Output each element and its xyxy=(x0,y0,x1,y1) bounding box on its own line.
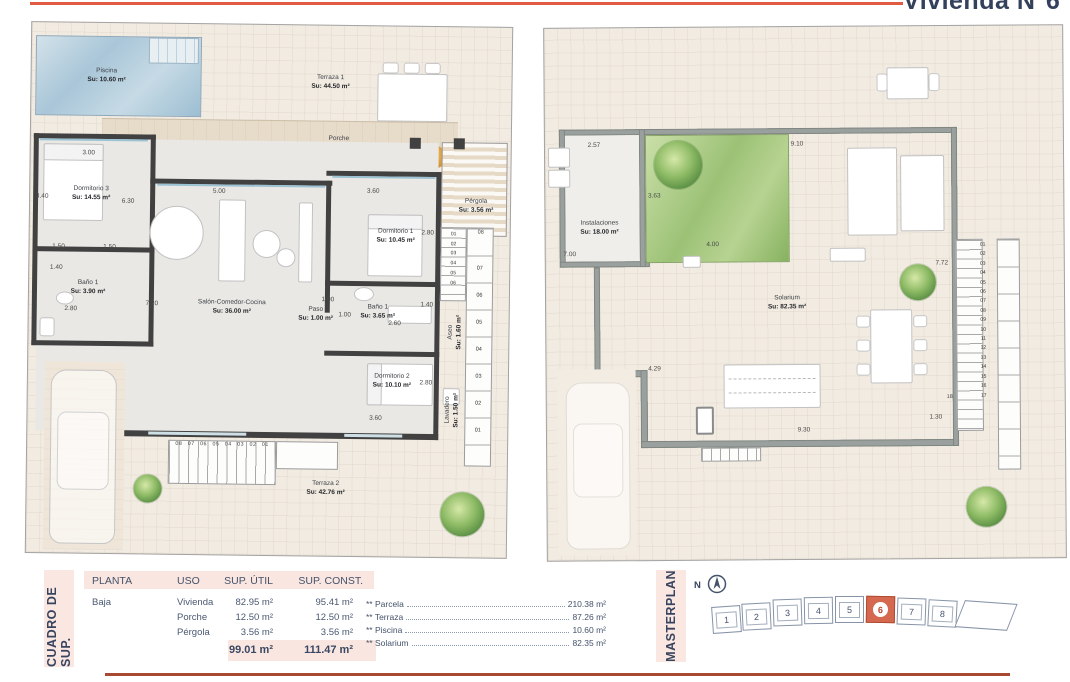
ground-floor-plan: Piscina Su: 10.60 m² Terraza 1 Su: 44.50… xyxy=(25,21,513,559)
extras-label: ** Piscina xyxy=(366,625,402,635)
dotted-leader xyxy=(405,631,569,633)
chair xyxy=(913,339,927,351)
extras-row: ** Parcela 210.38 m² xyxy=(366,596,606,609)
room-label-terraza2: Terraza 2 Su: 42.76 m² xyxy=(306,480,345,498)
planter-line xyxy=(729,392,816,394)
extras-value: 87.26 m² xyxy=(572,612,606,622)
wall-opening xyxy=(683,256,701,268)
planter xyxy=(723,364,820,409)
tree xyxy=(966,487,1006,527)
room-label-piscina: Piscina Su: 10.60 m² xyxy=(87,67,126,85)
tree xyxy=(900,264,936,300)
bottom-accent-line xyxy=(105,673,1010,676)
col-header-uso: USO xyxy=(177,575,200,587)
cell-util: 3.56 m² xyxy=(203,627,273,638)
cell-planta: Baja xyxy=(92,597,111,608)
parapet-wall xyxy=(641,370,649,448)
room-label-bano1: Baño 1 Su: 3.90 m² xyxy=(71,279,106,297)
extras-value: 10.60 m² xyxy=(572,625,606,635)
room-label-aseo: Aseo Su: 1.60 m² xyxy=(447,315,465,350)
sheet-title-clip: Vivienda N°6 xyxy=(903,0,1070,16)
chair xyxy=(856,316,870,328)
extras-row: ** Solarium 82.35 m² xyxy=(366,635,606,648)
room-area: Su: 36.00 m² xyxy=(198,307,266,317)
masterplan-unit-3: 3 xyxy=(773,599,803,627)
sofa xyxy=(218,199,246,281)
dimension-label: 7.00 xyxy=(563,251,576,258)
dimension-label: 4.29 xyxy=(648,366,661,373)
cell-util: 12.50 m² xyxy=(203,612,273,623)
col-header-sup-const: SUP. CONST. xyxy=(283,575,363,587)
table xyxy=(886,67,928,99)
unit-number: 6 xyxy=(878,604,883,614)
tree xyxy=(133,474,161,502)
cell-const: 12.50 m² xyxy=(283,612,353,623)
col-header-planta: PLANTA xyxy=(92,575,132,587)
roof-solarium-plan: Instalaciones Su: 18.00 m² Solarium Su: … xyxy=(543,24,1067,562)
chair xyxy=(856,340,870,352)
room-area: Su: 10.10 m² xyxy=(373,381,411,390)
stair-numbers-outer: 07 06 05 04 03 02 01 xyxy=(466,255,491,444)
room-area: Su: 1.00 m² xyxy=(298,314,333,323)
dotted-leader xyxy=(412,644,570,646)
dimension-label: 3.40 xyxy=(36,193,49,200)
sheet-title: Vivienda N°6 xyxy=(903,0,1070,16)
stair-numbers-inner: 01 02 03 04 05 06 xyxy=(442,230,465,288)
room-name: Terraza 1 xyxy=(311,74,349,83)
dimension-label: 18 xyxy=(947,394,953,400)
dimension-label: 6.30 xyxy=(122,198,135,205)
dimension-label: 9.30 xyxy=(798,426,811,433)
planter xyxy=(830,248,866,262)
bathroom-sink xyxy=(354,287,374,301)
masterplan-tail-plot xyxy=(954,600,1017,631)
room-area: Su: 44.50 m² xyxy=(311,83,349,92)
masterplan-unit-1: 1 xyxy=(711,605,742,634)
extras-value: 210.38 m² xyxy=(568,599,606,609)
dimension-label: 2.80 xyxy=(421,229,434,236)
dimension-label: 1.40 xyxy=(420,301,433,308)
extras-list: ** Parcela 210.38 m² ** Terraza 87.26 m²… xyxy=(366,596,606,648)
car xyxy=(49,369,117,544)
extras-label: ** Terraza xyxy=(366,612,403,622)
room-name: Salón-Comedor-Cocina xyxy=(198,298,266,308)
dimension-label: 2.80 xyxy=(64,305,77,312)
car xyxy=(566,382,631,549)
planter-line xyxy=(729,378,816,380)
chair xyxy=(425,63,441,74)
exterior-steps xyxy=(701,447,761,461)
floorplan-sheet: Vivienda N°6 Piscina Su: 10.60 m² Terraz… xyxy=(0,0,1070,682)
room-label-pergola: Pérgola Su: 3.56 m² xyxy=(459,198,494,216)
room-area: Su: 10.60 m² xyxy=(87,76,125,85)
dimension-label: 1.50 xyxy=(103,243,116,250)
chimney-vent xyxy=(696,407,714,435)
room-name: Lavadero xyxy=(444,393,453,428)
room-label-dormitorio3: Dormitorio 3 Su: 14.55 m² xyxy=(72,185,111,203)
unit-number: 8 xyxy=(940,608,946,618)
room-label-instalaciones: Instalaciones Su: 18.00 m² xyxy=(580,220,618,238)
cell-const: 95.41 m² xyxy=(283,597,353,608)
dimension-label: 7.20 xyxy=(145,300,158,307)
tree xyxy=(654,141,702,189)
stair-numbers-row: 08 07 06 05 04 03 02 01 xyxy=(175,441,269,448)
chair xyxy=(404,63,420,74)
room-label-salon: Salón-Comedor-Cocina Su: 36.00 m² xyxy=(198,298,266,316)
dimension-label: 7.72 xyxy=(935,260,948,267)
stair-flight xyxy=(997,239,1022,470)
room-label-lavadero: Lavadero Su: 1.50 m² xyxy=(444,393,462,428)
masterplan-unit-4: 4 xyxy=(804,597,833,625)
instalaciones-room xyxy=(565,135,640,262)
room-area: Su: 3.90 m² xyxy=(71,288,106,297)
room-area: Su: 10.45 m² xyxy=(376,236,414,245)
chair xyxy=(876,73,887,91)
unit-number: 3 xyxy=(785,607,790,617)
cuadro-section-label: CUADRO DE SUP. xyxy=(45,570,73,667)
room-name: Aseo xyxy=(447,315,456,350)
pouf xyxy=(276,248,295,267)
dimension-label: 2.80 xyxy=(420,379,433,386)
chair xyxy=(913,315,927,327)
room-name: Dormitorio 2 xyxy=(373,373,411,382)
stair-numbers: 01 02 03 04 05 06 07 08 09 10 11 12 13 1… xyxy=(975,241,992,401)
dimension-label: 3.00 xyxy=(82,149,95,156)
room-label-terraza1: Terraza 1 Su: 44.50 m² xyxy=(311,74,350,92)
room-name: Dormitorio 1 xyxy=(377,228,415,237)
room-label-dormitorio1: Dormitorio 1 Su: 10.45 m² xyxy=(376,228,415,246)
parapet-wall xyxy=(560,261,650,268)
unit-highlight-circle: 6 xyxy=(873,602,888,617)
dimension-label: 2.57 xyxy=(588,142,601,149)
masterplan-unit-6-highlighted: 6 xyxy=(866,596,895,624)
room-name: Terraza 2 xyxy=(306,480,344,489)
dimension-label: 2.60 xyxy=(388,320,401,327)
col-header-sup-util: SUP. ÚTIL xyxy=(203,575,273,587)
toilet xyxy=(39,317,54,336)
masterplan-unit-7: 7 xyxy=(897,598,927,626)
lounge-area xyxy=(847,147,898,235)
chair xyxy=(928,73,939,91)
room-label-bano2: Baño 1 Su: 3.65 m² xyxy=(360,303,395,321)
cell-util: 82.95 m² xyxy=(203,597,273,608)
dining-table xyxy=(870,309,913,383)
parapet-wall xyxy=(594,267,601,377)
dimension-label: 1.00 xyxy=(338,311,351,318)
room-name: Instalaciones xyxy=(580,220,618,229)
extras-row: ** Terraza 87.26 m² xyxy=(366,609,606,622)
chair xyxy=(856,364,870,376)
cuadro-section-strip: CUADRO DE SUP. xyxy=(44,570,74,667)
masterplan-section-strip: MASTERPLAN xyxy=(656,570,686,662)
dimension-label: 1.30 xyxy=(930,414,943,421)
dimension-label: 1.40 xyxy=(50,264,63,271)
pool-steps xyxy=(149,38,199,65)
lounge-area xyxy=(900,155,945,231)
room-name: Baño 1 xyxy=(71,279,106,288)
top-accent-line xyxy=(30,2,903,5)
dotted-leader xyxy=(406,618,569,620)
dimension-label: 1.50 xyxy=(52,243,65,250)
room-area: Su: 14.55 m² xyxy=(72,194,110,203)
rooftop-unit xyxy=(548,148,570,168)
room-name: Solarium xyxy=(768,294,806,303)
room-area: Su: 3.56 m² xyxy=(459,206,494,215)
room-name: Baño 1 xyxy=(360,303,395,312)
room-area: Su: 1.60 m² xyxy=(455,315,464,350)
kitchen-counter xyxy=(298,202,313,282)
room-label-dormitorio2: Dormitorio 2 Su: 10.10 m² xyxy=(373,373,412,391)
room-label-paso: Paso Su: 1.00 m² xyxy=(298,306,333,324)
room-name: Pérgola xyxy=(459,198,494,207)
room-area: Su: 82.35 m² xyxy=(768,303,806,312)
unit-number: 4 xyxy=(816,605,821,615)
masterplan-unit-2: 2 xyxy=(741,602,771,630)
cell-const: 3.56 m² xyxy=(283,627,353,638)
masterplan-unit-8: 8 xyxy=(927,599,957,627)
chair xyxy=(913,363,927,375)
car-cabin xyxy=(56,412,109,490)
stair-number-top: 08 xyxy=(478,230,484,236)
pergola-column xyxy=(410,138,421,149)
extras-label: ** Solarium xyxy=(366,638,409,648)
dimension-label: 3.60 xyxy=(367,188,380,195)
extras-value: 82.35 m² xyxy=(572,638,606,648)
room-area: Su: 1.50 m² xyxy=(452,393,461,428)
room-area: Su: 42.76 m² xyxy=(306,488,344,497)
rooftop-unit xyxy=(548,170,570,188)
dimension-label: 9.10 xyxy=(791,141,804,148)
room-area: Su: 18.00 m² xyxy=(580,228,618,237)
dimension-label: 3.60 xyxy=(369,415,382,422)
total-util: 99.01 m² xyxy=(195,644,273,656)
unit-number: 7 xyxy=(909,606,914,616)
north-label: N xyxy=(694,580,701,591)
chair xyxy=(383,62,399,73)
dimension-label: 5.00 xyxy=(213,188,226,195)
extras-row: ** Piscina 10.60 m² xyxy=(366,622,606,635)
unit-number: 5 xyxy=(847,605,852,615)
masterplan-unit-5: 5 xyxy=(835,596,864,623)
dining-table xyxy=(377,73,448,122)
pergola-column xyxy=(454,138,465,149)
dimension-label: 4.00 xyxy=(706,241,719,248)
masterplan-section-label: MASTERPLAN xyxy=(664,570,678,662)
unit-number: 1 xyxy=(724,614,730,624)
dimension-label: 1.00 xyxy=(322,296,335,303)
dotted-leader xyxy=(407,605,565,607)
room-name: Paso xyxy=(298,306,333,315)
dimension-label: 3.63 xyxy=(648,193,661,200)
extras-label: ** Parcela xyxy=(366,599,404,609)
pergola-area xyxy=(441,142,508,237)
car-cabin xyxy=(572,423,623,498)
masterplan-units: 1 2 3 4 5 6 7 8 xyxy=(712,592,1022,644)
stair-landing xyxy=(276,441,338,470)
total-const: 111.47 m² xyxy=(279,644,353,656)
unit-number: 2 xyxy=(754,611,760,621)
room-label-solarium: Solarium Su: 82.35 m² xyxy=(768,294,806,312)
room-name: Dormitorio 3 xyxy=(72,185,110,194)
